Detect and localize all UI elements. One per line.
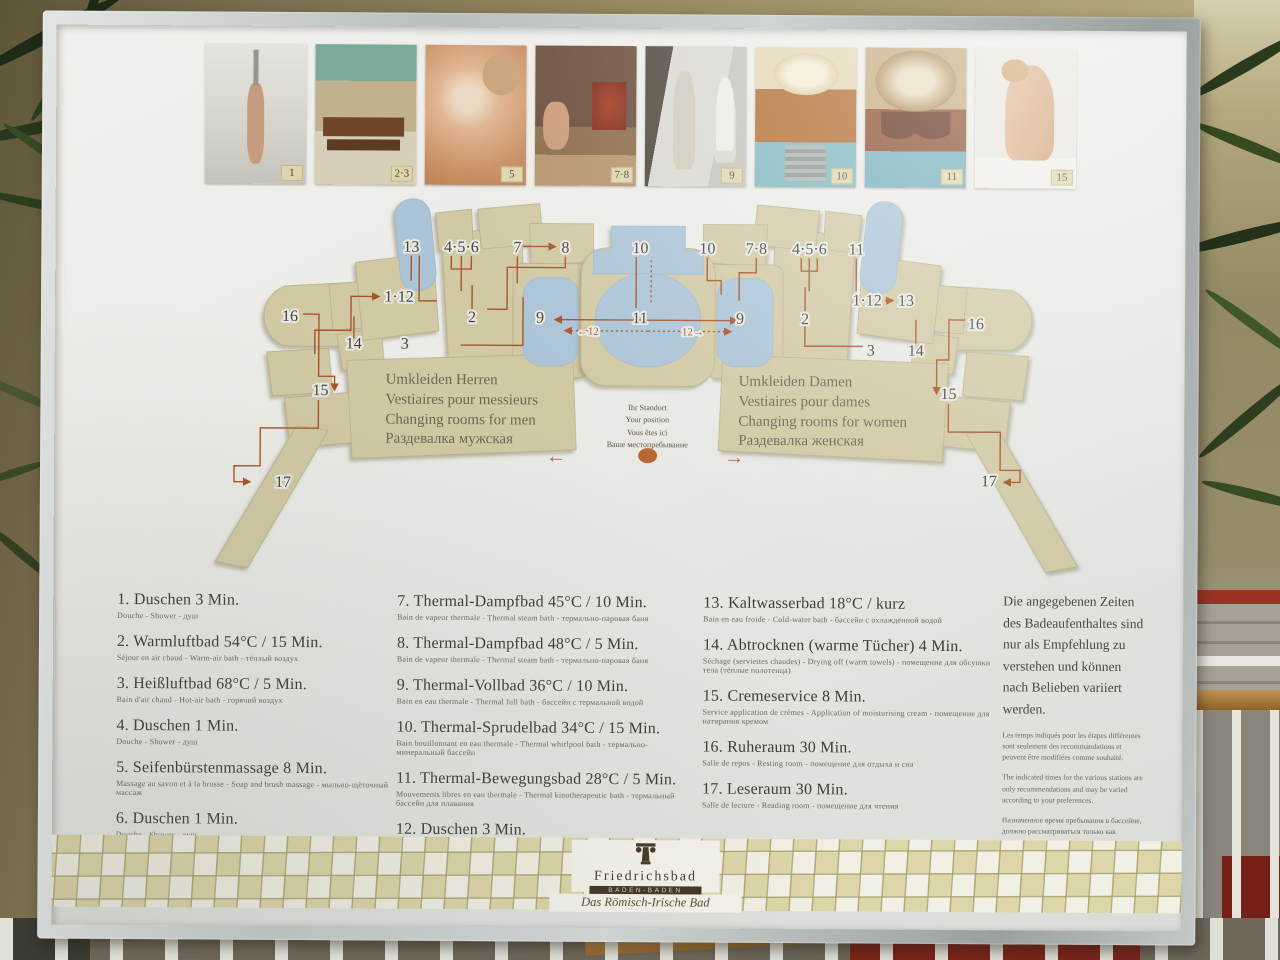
floor-plan-svg: 134·5·6781·12291614315171011←1212→107·84… [137,190,1159,586]
map-station-label: 10 [699,240,715,257]
legend-item: 5. Seifenbürstenmassage 8 Min. Massage a… [116,759,392,799]
legend-item-subtitle: Séjour en air chaud - Warm-air bath - тё… [117,653,393,664]
map-station-label: 16 [968,316,984,333]
map-station-label: 9 [736,311,744,328]
map-station-label: 13 [403,239,419,256]
photo-strip: 1 2·3 5 7·8 9 10 11 15 [205,43,1086,188]
spa-photo: 7·8 [535,45,637,186]
your-position-dot [638,448,657,463]
legend-item: 16. Ruheraum 30 Min. Salle de repos - Re… [702,739,996,770]
legend-item-title: 6. Duschen 1 Min. [116,810,392,830]
cross-pool-10 [593,226,703,275]
spa-photo: 10 [755,47,857,188]
text-line: Vestiaires pour dames [738,393,948,414]
map-station-label: 11 [632,310,648,327]
map-station-label: 1·12 [384,289,413,306]
map-station-label: ←12 [577,326,599,338]
logo-name: Friedrichsbad [572,869,720,886]
spa-photo: 15 [975,48,1077,189]
note-french: Les temps indiqués pour les étapes diffé… [1002,729,1146,764]
photo-number-badge: 10 [831,168,853,184]
plant-leaf [1194,118,1280,173]
legend-item: 3. Heißluftbad 68°C / 5 Min. Bain d'air … [117,675,393,706]
changing-rooms-women-label: Umkleiden DamenVestiaires pour damesChan… [738,373,948,453]
legend-item-title: 16. Ruheraum 30 Min. [702,739,996,759]
map-station-label: 14 [908,343,924,360]
map-station-label: 12→ [682,326,704,338]
map-station-label: 7 [513,239,521,256]
legend-item-title: 1. Duschen 3 Min. [117,591,393,611]
text-line: Раздевалка женская [738,432,948,453]
legend-item: 11. Thermal-Bewegungsbad 28°C / 5 Min. M… [396,770,696,810]
legend-item-title: 2. Warmluftbad 54°C / 15 Min. [117,633,393,653]
text-line: Changing rooms for men [385,410,595,431]
text-line: Umkleiden Herren [386,371,596,392]
legend-item-subtitle: Douche - Shower - душ [116,737,392,748]
map-station-label: 2 [801,311,809,328]
map-station-label: 16 [282,308,298,325]
legend-item-title: 5. Seifenbürstenmassage 8 Min. [116,759,392,779]
legend-item-subtitle: Salle de repos - Resting room - помещени… [702,759,996,770]
photo-number-badge: 1 [281,165,303,181]
changing-rooms-men-label: Umkleiden HerrenVestiaires pour messieur… [385,371,595,451]
text-line: Vous êtes ici [592,427,702,440]
legend-item: 13. Kaltwasserbad 18°C / kurz Bain en ea… [703,595,997,626]
plant-leaf [1203,286,1280,365]
map-station-label: 3 [401,336,409,353]
map-station-label: 14 [346,335,362,352]
legend-item-subtitle: Bain de vapeur thermale - Thermal steam … [397,655,697,666]
legend-column-2: 7. Thermal-Dampfbad 45°C / 10 Min. Bain … [396,593,698,865]
legend-item-subtitle: Douche - Shower - душ [117,611,393,622]
arrow-right-icon: → [724,448,744,468]
map-station-label: 17 [275,474,291,491]
map-station-label: 4·5·6 [792,241,827,258]
legend-column-3: 13. Kaltwasserbad 18°C / kurz Bain en ea… [702,595,997,825]
photo-number-badge: 11 [941,169,963,185]
legend-item: 9. Thermal-Vollbad 36°C / 10 Min. Bain e… [397,677,697,708]
plant-leaf [1200,477,1280,513]
legend-item: 4. Duschen 1 Min. Douche - Shower - душ [116,717,392,748]
legend-item-title: 7. Thermal-Dampfbad 45°C / 10 Min. [397,593,697,613]
roman-column-icon [633,842,659,866]
board-aluminum-frame: 1 2·3 5 7·8 9 10 11 15 [37,10,1201,945]
legend-item: 2. Warmluftbad 54°C / 15 Min. Séjour en … [117,633,393,664]
text-line: Ihr Standort [592,402,702,415]
info-board-poster: 1 2·3 5 7·8 9 10 11 15 [51,25,1186,932]
legend-item: 15. Cremeservice 8 Min. Service applicat… [702,688,996,728]
photo-number-badge: 7·8 [611,167,633,183]
legend-item-subtitle: Bain bouillonnant en eau thermale - Ther… [396,739,696,759]
legend-item-title: 3. Heißluftbad 68°C / 5 Min. [117,675,393,695]
legend-item-title: 10. Thermal-Sprudelbad 34°C / 15 Min. [396,719,696,739]
legend-item-subtitle: Massage au savon et à la brosse - Soap a… [116,779,392,799]
spa-photo: 1 [205,43,307,184]
map-station-label: 7·8 [746,241,767,258]
legend-item-title: 14. Abtrocknen (warme Tücher) 4 Min. [703,637,997,657]
spa-photo: 2·3 [315,44,417,185]
legend-item-subtitle: Service application de crèmes - Applicat… [702,708,996,728]
photo-number-badge: 9 [721,168,743,184]
map-station-label: 3 [867,343,875,360]
note-block: Die angegebenen Zeiten des Badeaufenthal… [1002,590,1148,860]
legend-item-subtitle: Mouvements libres en eau thermale - Ther… [396,790,696,810]
red-wall-strip [1194,590,1280,604]
railing-top-bar [1194,656,1280,666]
legend-item-title: 8. Thermal-Dampfbad 48°C / 5 Min. [397,635,697,655]
legend-item-title: 9. Thermal-Vollbad 36°C / 10 Min. [397,677,697,697]
legend-column-1: 1. Duschen 3 Min. Douche - Shower - душ … [116,591,394,854]
legend-item-subtitle: Séchage (serviettes chaudes) - Drying of… [703,657,997,677]
legend-item: 7. Thermal-Dampfbad 45°C / 10 Min. Bain … [397,593,697,624]
note-german: Die angegebenen Zeiten des Badeaufenthal… [1003,590,1148,720]
legend-item-title: 4. Duschen 1 Min. [116,717,392,737]
photo-number-badge: 5 [501,166,523,182]
text-line: Your position [592,414,702,427]
photo-number-badge: 15 [1051,170,1073,186]
map-station-label: 9 [536,309,544,326]
map-station-label: 1·12 [852,292,881,309]
background-right [1194,0,1280,960]
map-station-label: 2 [468,309,476,326]
text-line: Changing rooms for women [738,412,948,433]
plant-leaf [1194,28,1280,103]
wooden-handrail [1194,690,1280,710]
arrow-left-icon: ← [546,447,566,467]
spa-photo: 9 [645,46,747,187]
legend-item-title: 11. Thermal-Bewegungsbad 28°C / 5 Min. [396,770,696,790]
legend-item-subtitle: Salle de lecture - Reading room - помеще… [702,801,996,812]
text-line: Vestiaires pour messieurs [385,390,595,411]
legend-item-title: 13. Kaltwasserbad 18°C / kurz [703,595,997,615]
your-position-label: Ihr StandortYour positionVous êtes iciВа… [592,402,702,452]
legend-item: 1. Duschen 3 Min. Douche - Shower - душ [117,591,393,622]
spa-photo: 11 [865,47,967,188]
legend-item: 17. Leseraum 30 Min. Salle de lecture - … [702,781,996,812]
photograph-scene: 1 2·3 5 7·8 9 10 11 15 [0,0,1280,960]
logo: Friedrichsbad BADEN-BADEN [571,840,719,893]
legend-item-title: 17. Leseraum 30 Min. [702,781,996,801]
legend-item-subtitle: Bain en eau froide - Cold-water bath - б… [703,615,997,626]
logo-subtitle: Das Römisch-Irische Bad [549,894,741,913]
room-17-reading [215,426,328,569]
legend-item: 8. Thermal-Dampfbad 48°C / 5 Min. Bain d… [397,635,697,666]
legend-item: 14. Abtrocknen (warme Tücher) 4 Min. Séc… [703,637,997,677]
legend-item: 10. Thermal-Sprudelbad 34°C / 15 Min. Ba… [396,719,696,759]
plant-leaf [1194,213,1280,259]
text-line: Umkleiden Damen [739,373,949,394]
map-station-label: 15 [312,382,328,399]
map-station-label: 13 [898,293,914,310]
legend-item-title: 15. Cremeservice 8 Min. [703,688,997,708]
legend-item-subtitle: Bain d'air chaud - Hot-air bath - горячи… [117,695,393,706]
plant-leaf [1196,370,1280,462]
map-station-label: 4·5·6 [444,239,479,256]
side-pool [523,277,580,365]
map-station-label: 17 [981,473,997,490]
photo-number-badge: 2·3 [391,166,413,182]
spa-photo: 5 [425,45,527,186]
map-station-label: 11 [849,241,865,258]
note-english: The indicated times for the various stat… [1002,772,1146,807]
map-station-label: 10 [632,240,648,257]
map-station-label: 8 [561,240,569,257]
legend-item-subtitle: Bain en eau thermale - Thermal full bath… [397,697,697,708]
legend-item-subtitle: Bain de vapeur thermale - Thermal steam … [397,613,697,624]
